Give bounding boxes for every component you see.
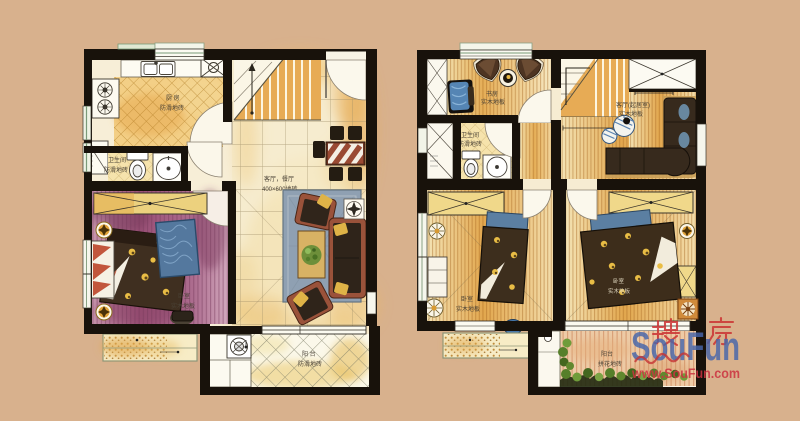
svg-text:卧室: 卧室 [178,292,190,300]
svg-text:拼花地砖: 拼花地砖 [598,360,622,368]
svg-text:防滑地砖: 防滑地砖 [160,104,184,112]
svg-text:阳台: 阳台 [601,350,613,358]
svg-text:实木地板: 实木地板 [171,302,195,310]
svg-text:实木地板: 实木地板 [619,110,643,118]
svg-text:厨 房: 厨 房 [166,94,180,102]
svg-text:书房: 书房 [486,90,498,98]
svg-text:客厅，餐厅: 客厅，餐厅 [264,175,294,183]
svg-text:防滑地砖: 防滑地砖 [104,166,128,174]
svg-text:卧室: 卧室 [461,295,473,303]
svg-text:卫生间: 卫生间 [108,156,126,164]
svg-text:实木地板: 实木地板 [456,305,480,313]
svg-text:客厅(起居室): 客厅(起居室) [616,101,650,109]
svg-text:防滑地砖: 防滑地砖 [298,360,322,368]
svg-text:阳 台: 阳 台 [302,350,316,358]
svg-text:防滑地砖: 防滑地砖 [458,140,482,148]
svg-text:实木地板: 实木地板 [481,98,505,106]
svg-text:卧室: 卧室 [613,277,625,285]
svg-text:卫生间: 卫生间 [461,131,479,139]
svg-text:www.SouFun.com: www.SouFun.com [631,365,740,381]
svg-text:实木地板: 实木地板 [608,287,631,295]
